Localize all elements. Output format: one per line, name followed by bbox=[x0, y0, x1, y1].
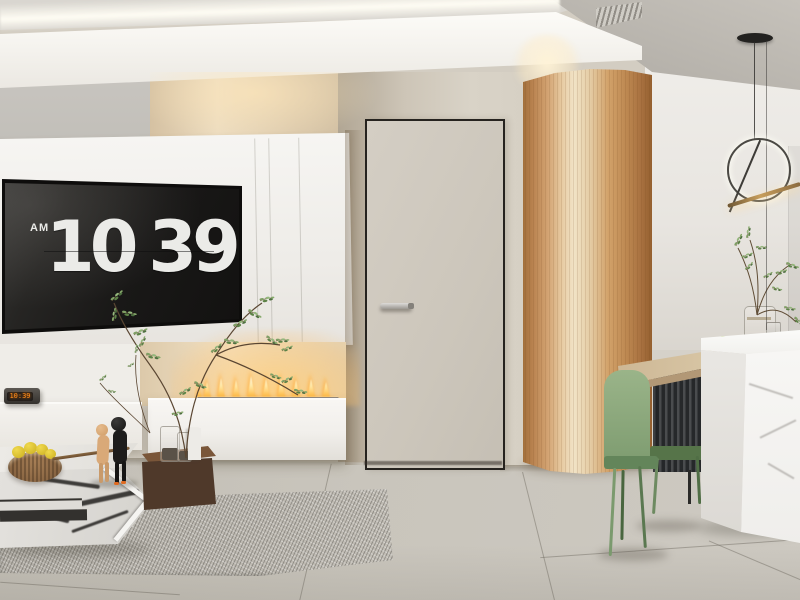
island-front-face bbox=[740, 350, 800, 545]
door-handle bbox=[380, 303, 412, 309]
table-leg bbox=[688, 470, 691, 504]
pendant-cable bbox=[754, 42, 755, 140]
book bbox=[0, 509, 87, 522]
alarm-clock: 10:39 bbox=[4, 388, 40, 404]
figurine-shoe bbox=[121, 481, 126, 484]
alarm-clock-display: 10:39 bbox=[7, 392, 33, 401]
door-handle-base bbox=[408, 303, 414, 309]
marble-vein bbox=[768, 463, 795, 480]
figurine-shoe bbox=[114, 482, 119, 485]
marble-vein bbox=[749, 383, 793, 399]
island-left-face bbox=[700, 348, 747, 533]
island-plant bbox=[686, 218, 800, 354]
door bbox=[365, 119, 505, 470]
chair-back bbox=[604, 370, 650, 464]
pendant-canopy bbox=[737, 33, 773, 43]
marble-vein bbox=[760, 419, 797, 438]
chair-back bbox=[646, 362, 704, 452]
door-threshold-shadow bbox=[364, 461, 502, 465]
decor-plant bbox=[84, 215, 354, 475]
chair-shadow bbox=[636, 520, 702, 532]
living-room-scene: 10:39 AM 10 39 bbox=[0, 0, 800, 600]
chair-seat bbox=[604, 456, 658, 469]
